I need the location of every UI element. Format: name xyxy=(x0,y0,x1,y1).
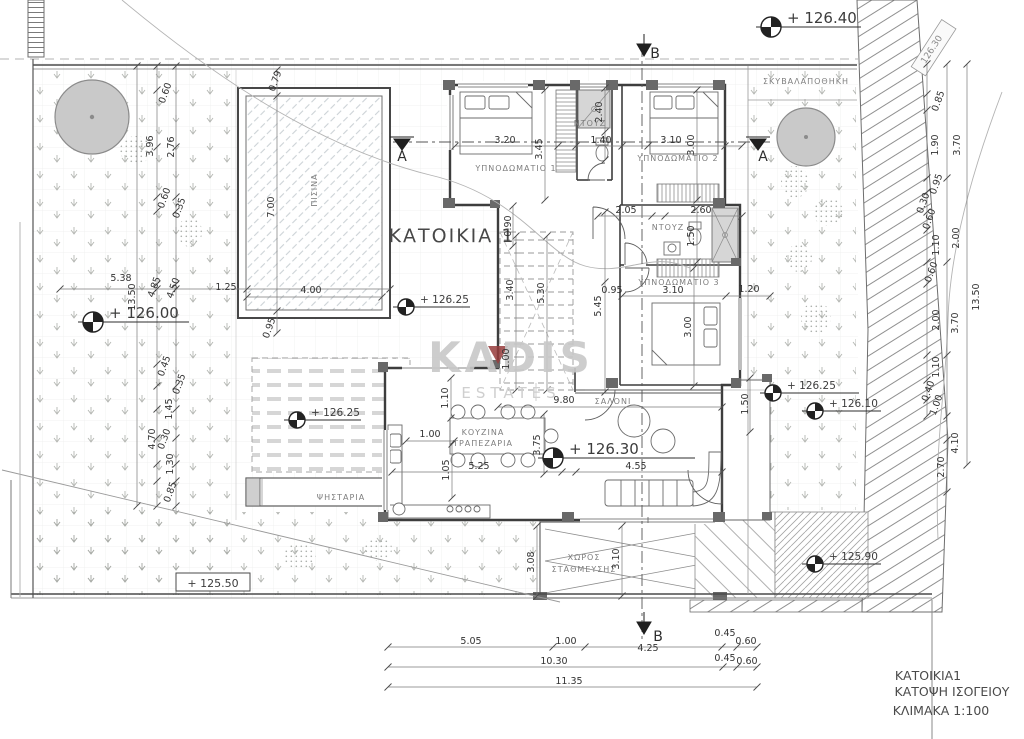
dimension-label: 0.95 xyxy=(601,285,622,296)
room-dining: ΤΡΑΠΕΖΑΡΙΑ xyxy=(452,439,513,448)
floor-plan: ΚΑΤΟΙΚΙΑ 1KADISESTATESΚΑΤΟΙΚΙΑ1ΚΑΤΟΨΗ ΙΣ… xyxy=(0,0,1024,739)
floor-plan-canvas: ΚΑΤΟΙΚΙΑ 1KADISESTATESΚΑΤΟΙΚΙΑ1ΚΑΤΟΨΗ ΙΣ… xyxy=(0,0,1024,739)
room-parking-2: ΣΤΑΘΜΕΥΣΗΣ xyxy=(552,565,617,574)
paved-apron xyxy=(695,512,775,598)
titleblock-plan: ΚΑΤΟΨΗ ΙΣΟΓΕΙΟΥ xyxy=(895,684,1010,699)
elevation-value: + 125.90 xyxy=(829,551,878,563)
dimension-label: 1.25 xyxy=(215,282,236,293)
dimension-label: 1.10 xyxy=(931,356,942,377)
wardrobe-bedroom2 xyxy=(657,184,719,202)
dimension-label: 0.60 xyxy=(735,636,756,647)
room-garbage-store: ΣΚΥΒΑΛΑΠΟΘΗΚΗ xyxy=(763,77,849,86)
dimension-label: 2.00 xyxy=(951,227,962,248)
dimension-label: 2.76 xyxy=(166,136,177,157)
elevation-value: + 126.25 xyxy=(420,294,469,306)
watermark-estates: ESTATES xyxy=(461,384,560,402)
dimension-label: 3.00 xyxy=(683,316,694,337)
dimension-label: 0.45 xyxy=(714,653,735,664)
dimension-label: 1.00 xyxy=(419,429,440,440)
dimension-label: 9.80 xyxy=(553,395,574,406)
dimension-label: 5.45 xyxy=(593,295,604,316)
dimension-label: 3.45 xyxy=(534,138,545,159)
section-a-left: A xyxy=(397,149,407,165)
room-bbq: ΨΗΣΤΑΡΙΑ xyxy=(317,493,365,502)
dimension-label: 3.96 xyxy=(145,135,156,156)
dimension-label: 1.30 xyxy=(165,453,176,474)
elevation-value: + 126.25 xyxy=(311,407,360,419)
dimension-label: 3.10 xyxy=(662,285,683,296)
dimension-label: 1.00 xyxy=(501,348,512,369)
dimension-label: 3.70 xyxy=(952,134,963,155)
dimension-label: 4.10 xyxy=(950,432,961,453)
elevation-value: + 126.25 xyxy=(787,380,836,392)
dimension-label: 3.10 xyxy=(611,548,622,569)
dimension-label: 3.75 xyxy=(532,434,543,455)
dimension-label: 3.10 xyxy=(660,135,681,146)
section-b-top: B xyxy=(650,46,660,62)
dimension-label: 1.10 xyxy=(931,234,942,255)
wardrobe-bedroom1 xyxy=(556,90,576,172)
round-table xyxy=(618,405,650,437)
plan-title: ΚΑΤΟΙΚΙΑ 1 xyxy=(389,225,516,247)
dimension-label: 5.25 xyxy=(468,461,489,472)
titleblock-scale: ΚΛΙΜΑΚΑ 1:100 xyxy=(893,703,990,718)
elevation-value: + 126.40 xyxy=(787,9,857,27)
dimension-label: 7.00 xyxy=(266,196,277,217)
dimension-label: 4.25 xyxy=(637,643,658,654)
dimension-label: 1.05 xyxy=(441,459,452,480)
dimension-label: 5.30 xyxy=(536,282,547,303)
dimension-label: 3.40 xyxy=(505,279,516,300)
dimension-label: 1.20 xyxy=(738,284,759,295)
dimension-label: 10.30 xyxy=(540,656,567,667)
elevation-value: + 126.00 xyxy=(109,304,179,322)
dimension-label: 2.00 xyxy=(931,309,942,330)
elevation-value: + 126.30 xyxy=(569,440,639,458)
elevation-value: + 125.50 xyxy=(187,577,238,590)
elevation-marker: + 125.50 xyxy=(176,573,250,591)
room-bedroom-2: ΥΠΝΟΔΩΜΑΤΙΟ 2 xyxy=(636,154,718,163)
dimension-label: 11.35 xyxy=(555,676,582,687)
dimension-label: 2.70 xyxy=(936,456,947,477)
dimension-label: 5.05 xyxy=(460,636,481,647)
titleblock-house: ΚΑΤΟΙΚΙΑ1 xyxy=(895,668,961,683)
round-table xyxy=(651,429,675,453)
room-pool: ΠΙΣΙΝΑ xyxy=(310,173,319,206)
dimension-label: 5.38 xyxy=(110,273,131,284)
dimension-label: 4.00 xyxy=(300,285,321,296)
dimension-label: 2.40 xyxy=(594,101,605,122)
room-shower-2: ΝΤΟΥΖ xyxy=(652,223,685,232)
dimension-label: 1.50 xyxy=(740,393,751,414)
room-parking-1: ΧΩΡΟΣ xyxy=(568,553,601,562)
dimension-label: 1.40 xyxy=(590,135,611,146)
elevation-value: + 126.10 xyxy=(829,398,878,410)
dimension-label: 3.08 xyxy=(526,551,537,572)
dimension-label: 1.50 xyxy=(686,225,697,246)
room-kitchen: ΚΟΥΖΙΝΑ xyxy=(462,428,505,437)
boundary-wall-detail xyxy=(28,0,44,57)
section-a-right: A xyxy=(758,149,768,165)
dimension-label: 1.00 xyxy=(555,636,576,647)
dimension-label: 3.70 xyxy=(950,312,961,333)
room-bedroom-1: ΥΠΝΟΔΩΜΑΤΙΟ 1 xyxy=(474,164,556,173)
dimension-label: 3.00 xyxy=(686,134,697,155)
dimension-label: 0.60 xyxy=(736,656,757,667)
dimension-label: 1.90 xyxy=(930,134,941,155)
dimension-label: 1.10 xyxy=(440,387,451,408)
dimension-label: 13.50 xyxy=(971,283,982,310)
room-living: ΣΑΛΟΝΙ xyxy=(595,397,632,406)
dimension-label: 3.20 xyxy=(494,135,515,146)
dimension-label: 2.05 xyxy=(615,205,636,216)
dimension-label: 2.60 xyxy=(690,205,711,216)
dimension-label: 0.45 xyxy=(714,628,735,639)
dimension-label: 0.90 xyxy=(503,215,514,236)
dimension-label: 1.45 xyxy=(164,398,175,419)
dimension-label: 4.55 xyxy=(625,461,646,472)
